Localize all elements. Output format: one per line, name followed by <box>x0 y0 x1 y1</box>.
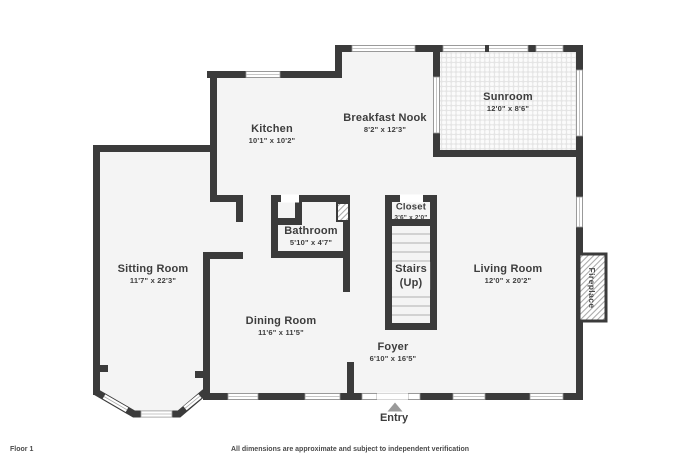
room-name: Sunroom <box>483 91 533 104</box>
room-dimensions: 6'10" x 16'5" <box>370 355 417 364</box>
entry-label: Entry <box>380 412 408 424</box>
room-label-closet: Closet 3'6" x 2'0" <box>394 202 427 221</box>
room-direction: (Up) <box>395 277 427 290</box>
room-dimensions: 12'0" x 20'2" <box>474 277 543 286</box>
room-label-sitting-room: Sitting Room 11'7" x 22'3" <box>118 263 189 285</box>
room-label-sunroom: Sunroom 12'0" x 8'6" <box>483 91 533 113</box>
room-label-foyer: Foyer 6'10" x 16'5" <box>370 341 417 363</box>
fireplace-label: Fireplace <box>587 268 597 309</box>
room-label-bathroom: Bathroom 5'10" x 4'7" <box>284 225 338 247</box>
room-dimensions: 12'0" x 8'6" <box>483 105 533 114</box>
room-name: Stairs <box>395 263 427 276</box>
room-name: Dining Room <box>246 315 317 328</box>
entry-arrow-icon <box>388 403 403 412</box>
room-dimensions: 8'2" x 12'3" <box>343 126 427 135</box>
disclaimer-text: All dimensions are approximate and subje… <box>0 446 700 453</box>
room-name: Foyer <box>370 341 417 354</box>
room-name: Bathroom <box>284 225 338 238</box>
room-name: Kitchen <box>249 123 296 136</box>
room-name: Breakfast Nook <box>343 112 427 125</box>
floorplan-canvas: Kitchen 10'1" x 10'2" Breakfast Nook 8'2… <box>0 0 700 467</box>
room-label-kitchen: Kitchen 10'1" x 10'2" <box>249 123 296 145</box>
room-label-dining-room: Dining Room 11'6" x 11'5" <box>246 315 317 337</box>
floorplan-drawing <box>0 0 700 467</box>
room-dimensions: 11'6" x 11'5" <box>246 329 317 338</box>
room-name: Living Room <box>474 263 543 276</box>
room-label-stairs: Stairs (Up) <box>392 262 430 290</box>
chimney-flue <box>337 203 349 221</box>
room-dimensions: 3'6" x 2'0" <box>394 214 427 221</box>
room-dimensions: 5'10" x 4'7" <box>284 239 338 248</box>
room-name: Closet <box>394 202 427 213</box>
room-label-living-room: Living Room 12'0" x 20'2" <box>474 263 543 285</box>
window-mullion <box>485 45 489 52</box>
room-label-breakfast-nook: Breakfast Nook 8'2" x 12'3" <box>343 112 427 134</box>
room-name: Sitting Room <box>118 263 189 276</box>
room-dimensions: 10'1" x 10'2" <box>249 137 296 146</box>
room-dimensions: 11'7" x 22'3" <box>118 277 189 286</box>
